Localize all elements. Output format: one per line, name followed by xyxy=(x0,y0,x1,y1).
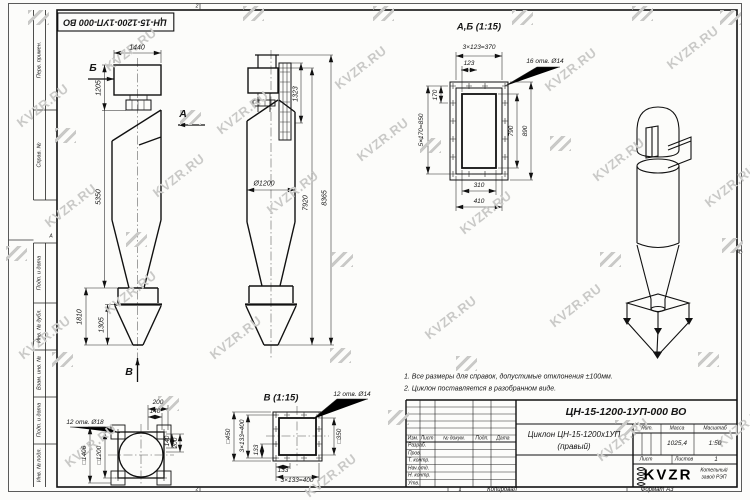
dim-5x170: 5×170=850 xyxy=(419,114,426,147)
note-line-1: 1. Все размеры для справок, допустимые о… xyxy=(404,374,613,381)
strip-cell-podp-data-1: Подп. и дата xyxy=(37,256,43,290)
dim-7920: 7920 xyxy=(303,195,310,211)
section-ab-title: А,Б (1:15) xyxy=(457,22,501,32)
logo-subtext-1: Котельный xyxy=(700,469,727,474)
strip-cell-inv-podl: Инв. № подл. xyxy=(37,448,43,482)
titleblock-col-doc: № докум. xyxy=(443,436,465,441)
dim-sq-1406: □1406 xyxy=(82,446,89,464)
titleblock-col-list: Лист xyxy=(421,436,434,441)
logo-subtext-2: завод РЭП xyxy=(702,476,727,481)
view-arrow-label-b: Б xyxy=(89,63,96,74)
dim-1440: 1440 xyxy=(129,45,145,52)
zone-letter-left: А xyxy=(49,235,52,240)
dim-200-right: 200 xyxy=(173,438,180,449)
titleblock-row-tkontr: Т. контр. xyxy=(408,459,430,464)
strip-cell-inv-dubl: Инв. № дубл. xyxy=(37,309,43,343)
dim-3x133-bottom: 3×133=400 xyxy=(281,478,314,485)
dim-200-top: 200 xyxy=(153,400,164,407)
top-stamp-designation: ЦН-15-1200-1УП-000 ВО xyxy=(63,18,166,27)
titleblock-row-razrab: Разраб. xyxy=(408,444,426,449)
dim-sq-1200: □1200 xyxy=(97,446,104,464)
dim-140-right: 140 xyxy=(165,436,172,447)
dim-8365: 8365 xyxy=(322,190,329,206)
dim-170: 170 xyxy=(433,90,440,101)
titleblock-mass-label: Масса xyxy=(670,426,685,431)
titleblock-col-data: Дата xyxy=(496,436,509,441)
callout-12-holes-14: 12 отв. Ø14 xyxy=(333,392,370,399)
dim-3x133-left: 3×133=400 xyxy=(240,420,247,453)
titleblock-scale-label: Масштаб xyxy=(703,426,726,431)
zone-letter-right: А xyxy=(737,250,742,253)
dim-1323: 1323 xyxy=(293,86,300,102)
titleblock-sheet-label: Лист xyxy=(640,457,653,462)
titleblock-designation: ЦН-15-1200-1УП-000 ВО xyxy=(566,407,687,418)
footer-format-label: Формат А3 xyxy=(641,487,674,493)
titleblock-scale-value: 1:50 xyxy=(709,441,722,448)
callout-16-holes: 16 отв. Ø14 xyxy=(526,59,563,66)
footer-copied-label: Копировал xyxy=(487,487,517,493)
dim-1305: 1305 xyxy=(99,317,106,333)
dim-133-bottom: 133 xyxy=(278,468,289,475)
titleblock-name-line2: (правый) xyxy=(557,443,590,451)
titleblock-sheets-label: Листов xyxy=(675,457,693,462)
dim-sq-450: □450 xyxy=(226,429,233,444)
titleblock-col-izm: Изм. xyxy=(408,436,419,441)
dim-310: 310 xyxy=(474,183,485,190)
dim-410: 410 xyxy=(474,199,485,206)
zone-number-bottom-left: 2 xyxy=(196,487,199,492)
strip-cell-vzam-inv: Взам. инв. № xyxy=(37,356,43,390)
dim-dia-1200: Ø1200 xyxy=(253,181,274,188)
callout-12-holes-18: 12 отв. Ø18 xyxy=(66,420,103,427)
titleblock-row-nkontr: Н. контр. xyxy=(408,474,431,479)
view-arrow-label-a: А xyxy=(179,109,187,120)
drawing-linework xyxy=(0,0,750,500)
dim-123: 123 xyxy=(464,61,475,68)
kvzr-logo-text: KVZR xyxy=(644,467,693,484)
titleblock-lit-label: Лит. xyxy=(641,426,653,431)
dim-1810: 1810 xyxy=(77,309,84,325)
titleblock-row-utv: Утв. xyxy=(408,481,419,486)
view-arrow-label-v: В xyxy=(125,367,133,378)
dim-3x123: 3×123=370 xyxy=(463,45,496,52)
strip-cell-perv-primen: Перв. примен. xyxy=(37,42,43,79)
titleblock-row-nachotd: Нач.отд. xyxy=(408,466,429,471)
titleblock-sheets-value: 1 xyxy=(714,457,717,463)
view-v-title: В (1:15) xyxy=(264,393,299,403)
dim-140-top: 140 xyxy=(150,409,161,416)
dim-890: 890 xyxy=(523,126,530,137)
titleblock-mass-value: 1025,4 xyxy=(667,441,687,448)
note-line-2: 2. Циклон поставляется в разобранном вид… xyxy=(404,386,556,393)
titleblock-col-podp: Подп. xyxy=(475,436,488,441)
strip-cell-sprav-no: Справ. № xyxy=(37,143,43,168)
zone-number-top: 2 xyxy=(196,4,199,9)
dim-sq-350: □350 xyxy=(337,429,344,444)
zone-number-bottom-mid: 1 xyxy=(459,487,462,492)
titleblock-name-line1: Циклон ЦН-15-1200х1УП xyxy=(528,431,621,439)
strip-cell-podp-data-2: Подп. и дата xyxy=(37,403,43,437)
titleblock-row-prov: Пров. xyxy=(408,451,421,456)
dim-133-left: 133 xyxy=(254,445,261,456)
drawing-sheet: KVZR.RUKVZR.RUKVZR.RUKVZR.RUKVZR.RUKVZR.… xyxy=(0,0,750,500)
dim-790: 790 xyxy=(509,126,516,137)
dim-1205: 1205 xyxy=(96,80,103,96)
dim-5350: 5350 xyxy=(96,189,103,205)
